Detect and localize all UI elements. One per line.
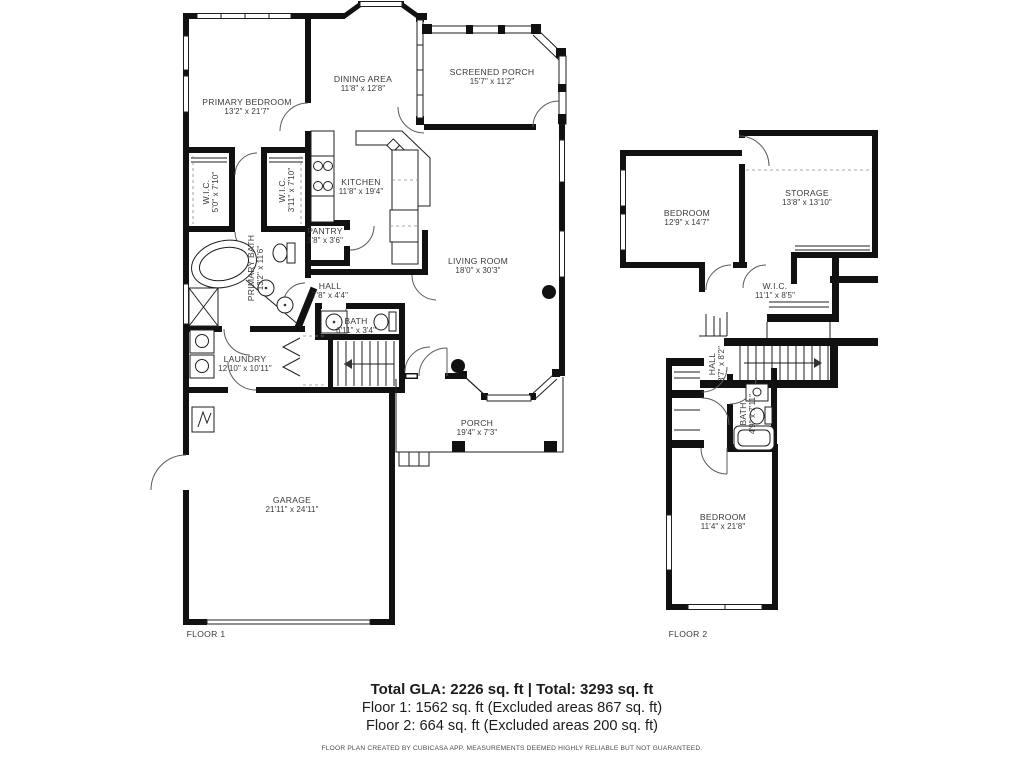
room-label-bedroom-top: BEDROOM 12'9" x 14'7" bbox=[664, 208, 710, 228]
room-dims: 12'10" x 10'11" bbox=[218, 364, 272, 374]
room-label-hall: HALL 7'8" x 4'4" bbox=[312, 281, 348, 301]
room-name: W.I.C. bbox=[201, 172, 211, 213]
room-name: PRIMARY BATH bbox=[246, 235, 256, 302]
room-name: SCREENED PORCH bbox=[450, 67, 535, 77]
room-name: BEDROOM bbox=[664, 208, 710, 218]
room-label-dining-area: DINING AREA 11'8" x 12'8" bbox=[334, 74, 392, 94]
room-name: PRIMARY BEDROOM bbox=[202, 97, 291, 107]
room-label-bath: BATH 6'11" x 3'4" bbox=[336, 316, 376, 336]
room-name: DINING AREA bbox=[334, 74, 392, 84]
room-label-porch: PORCH 19'4" x 7'3" bbox=[457, 418, 498, 438]
room-dims: 3'11" x 7'10" bbox=[287, 168, 297, 213]
room-dims: 11'8" x 12'8" bbox=[334, 84, 392, 94]
room-dims: 3'8" x 3'6" bbox=[307, 236, 343, 246]
column-post-icon bbox=[451, 359, 465, 373]
room-label-living-room: LIVING ROOM 18'0" x 30'3" bbox=[448, 256, 508, 276]
room-dims: 21'11" x 24'11" bbox=[265, 505, 318, 515]
room-name: HALL bbox=[707, 346, 717, 382]
room-dims: 3'7" x 8'2" bbox=[717, 346, 727, 382]
room-label-wic-left: W.I.C. 5'0" x 7'10" bbox=[201, 172, 221, 213]
room-label-screened-porch: SCREENED PORCH 15'7" x 11'2" bbox=[450, 67, 535, 87]
room-label-pantry: PANTRY 3'8" x 3'6" bbox=[307, 226, 343, 246]
room-label-laundry: LAUNDRY 12'10" x 10'11" bbox=[218, 354, 272, 374]
room-dims: 15'7" x 11'2" bbox=[450, 77, 535, 87]
floor2-area-text: Floor 2: 664 sq. ft (Excluded areas 200 … bbox=[0, 717, 1024, 735]
room-label-primary-bath: PRIMARY BATH 13'2" x 11'6" bbox=[246, 235, 266, 302]
room-label-hall-floor2: HALL 3'7" x 8'2" bbox=[707, 346, 727, 382]
column-post-icon bbox=[542, 285, 556, 299]
room-dims: 6'11" x 3'4" bbox=[336, 326, 376, 336]
room-dims: 12'9" x 14'7" bbox=[664, 218, 710, 228]
room-label-wic-floor2: W.I.C. 11'1" x 8'5" bbox=[755, 281, 795, 301]
disclaimer-text: FLOOR PLAN CREATED BY CUBICASA APP. MEAS… bbox=[0, 745, 1024, 752]
room-dims: 13'8" x 13'10" bbox=[782, 198, 832, 208]
room-dims: 11'8" x 19'4" bbox=[339, 187, 384, 197]
total-gla-text: Total GLA: 2226 sq. ft | Total: 3293 sq.… bbox=[0, 680, 1024, 699]
room-name: HALL bbox=[312, 281, 348, 291]
room-dims: 18'0" x 30'3" bbox=[448, 266, 508, 276]
room-dims: 13'2" x 21'7" bbox=[202, 107, 291, 117]
room-label-bedroom-bottom: BEDROOM 11'4" x 21'8" bbox=[700, 512, 746, 532]
room-label-wic-right: W.I.C. 3'11" x 7'10" bbox=[277, 168, 297, 213]
room-dims: 11'1" x 8'5" bbox=[755, 291, 795, 301]
room-label-bath-floor2: BATH 4'9" x 7'11" bbox=[738, 394, 758, 434]
room-dims: 7'8" x 4'4" bbox=[312, 291, 348, 301]
primary-bath-fixtures-icon bbox=[186, 233, 300, 326]
room-dims: 13'2" x 11'6" bbox=[256, 235, 266, 302]
room-label-storage: STORAGE 13'8" x 13'10" bbox=[782, 188, 832, 208]
room-name: BATH bbox=[738, 394, 748, 434]
room-label-garage: GARAGE 21'11" x 24'11" bbox=[265, 495, 318, 515]
room-name: PANTRY bbox=[307, 226, 343, 236]
room-name: STORAGE bbox=[782, 188, 832, 198]
room-dims: 5'0" x 7'10" bbox=[211, 172, 221, 213]
washer-dryer-icon bbox=[190, 330, 214, 378]
floor1-walls bbox=[183, 1, 565, 625]
floor-plan-page: PRIMARY BEDROOM 13'2" x 21'7" DINING ARE… bbox=[0, 0, 1024, 768]
floor1-windows bbox=[184, 2, 565, 625]
area-summary: Total GLA: 2226 sq. ft | Total: 3293 sq.… bbox=[0, 680, 1024, 735]
room-name: W.I.C. bbox=[277, 168, 287, 213]
room-name: KITCHEN bbox=[339, 177, 384, 187]
room-name: BATH bbox=[336, 316, 376, 326]
floor2-plan bbox=[620, 130, 878, 610]
room-dims: 11'4" x 21'8" bbox=[700, 522, 746, 532]
room-dims: 19'4" x 7'3" bbox=[457, 428, 498, 438]
room-name: BEDROOM bbox=[700, 512, 746, 522]
floor2-walls bbox=[620, 130, 878, 610]
floor1-stairs-icon bbox=[283, 336, 394, 386]
front-porch-outline bbox=[396, 285, 563, 466]
room-name: LAUNDRY bbox=[218, 354, 272, 364]
floor2-label: FLOOR 2 bbox=[669, 629, 708, 639]
floor1-label: FLOOR 1 bbox=[187, 629, 226, 639]
floor1-area-text: Floor 1: 1562 sq. ft (Excluded areas 867… bbox=[0, 699, 1024, 717]
room-dims: 4'9" x 7'11" bbox=[748, 394, 758, 434]
floor1-plan bbox=[151, 1, 566, 625]
room-name: LIVING ROOM bbox=[448, 256, 508, 266]
room-label-primary-bedroom: PRIMARY BEDROOM 13'2" x 21'7" bbox=[202, 97, 291, 117]
room-name: GARAGE bbox=[265, 495, 318, 505]
floor-plan-drawing bbox=[0, 0, 1024, 768]
room-name: W.I.C. bbox=[755, 281, 795, 291]
room-label-kitchen: KITCHEN 11'8" x 19'4" bbox=[339, 177, 384, 197]
room-name: PORCH bbox=[457, 418, 498, 428]
